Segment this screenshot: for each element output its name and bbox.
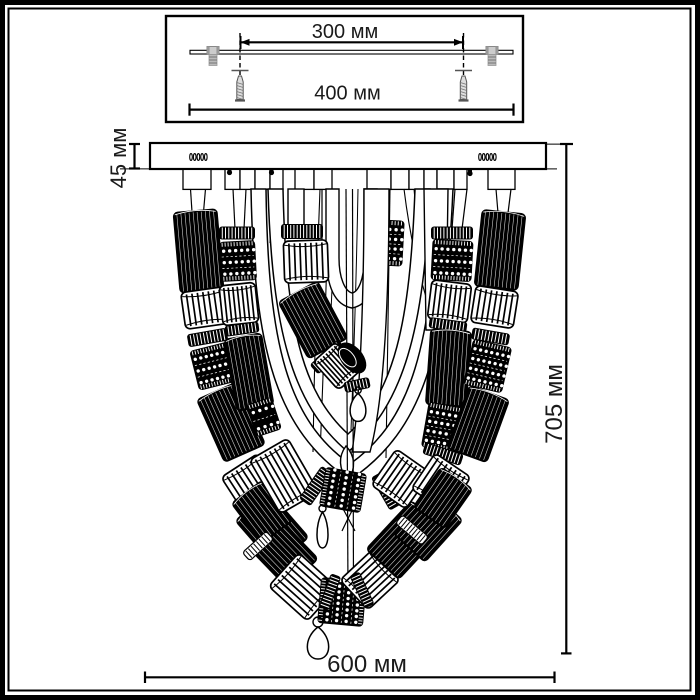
svg-text:400 мм: 400 мм xyxy=(314,83,380,105)
svg-text:705 мм: 705 мм xyxy=(541,364,568,444)
svg-text:45 мм: 45 мм xyxy=(106,128,131,189)
svg-text:300 мм: 300 мм xyxy=(312,21,378,43)
svg-text:600 мм: 600 мм xyxy=(327,651,407,678)
